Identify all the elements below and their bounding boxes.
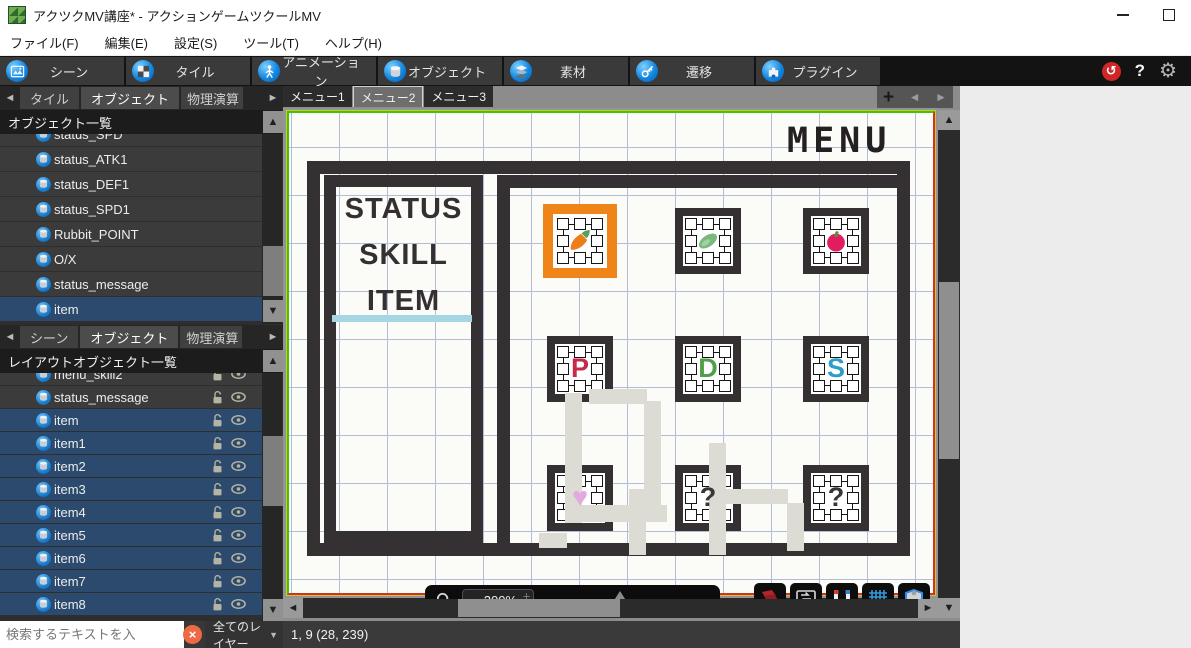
slot-letter-s-glyph: S	[827, 355, 845, 382]
selection-handle[interactable]	[847, 363, 859, 375]
grid-toggle-button[interactable]	[862, 583, 894, 599]
menu-labels: STATUSSKILLITEM	[324, 193, 483, 318]
selection-handle[interactable]	[813, 492, 825, 504]
object-icon	[36, 482, 51, 497]
slot-carrot[interactable]	[543, 204, 617, 278]
magnet-icon	[830, 587, 854, 600]
eye-icon[interactable]	[231, 484, 246, 494]
canvas-tab-1[interactable]: メニュー1	[283, 86, 352, 107]
selection-handle[interactable]	[557, 346, 569, 358]
search-input[interactable]	[0, 621, 184, 648]
list-item-label: status_message	[54, 277, 149, 292]
list-item-label: item2	[54, 459, 86, 474]
eye-icon[interactable]	[231, 530, 246, 540]
vertical-scroll-thumb[interactable]	[939, 282, 959, 459]
list-item-status_message[interactable]: status_message	[0, 272, 262, 296]
menu-item-5[interactable]: ヘルプ(H)	[325, 33, 382, 52]
layout-panel-header: レイアウトオブジェクト一覧	[0, 349, 283, 373]
toolbar-tab-label: 遷移	[658, 62, 754, 81]
list-item-status_message[interactable]: status_message	[0, 386, 262, 408]
vertical-scrollbar[interactable]: ▲ ▼	[938, 110, 960, 618]
chevron-down-icon: ▼	[269, 630, 283, 640]
list-item-menu_skill2[interactable]: menu_skill2	[0, 373, 262, 385]
list-item-label: item8	[54, 597, 86, 612]
list-item-label: status_ATK1	[54, 152, 127, 167]
layout-list-scroll-thumb[interactable]	[263, 436, 283, 506]
grid-icon	[866, 587, 890, 600]
list-item-label: item	[54, 413, 79, 428]
object-icon	[36, 459, 51, 474]
scroll-down-icon[interactable]: ▼	[938, 598, 960, 618]
unlock-icon[interactable]	[212, 529, 223, 542]
map-path	[787, 503, 804, 551]
list-item-label: item5	[54, 528, 86, 543]
toolbar-tab-animation[interactable]: アニメーション	[252, 57, 376, 85]
clear-search-icon[interactable]: ×	[183, 625, 202, 644]
add-tab-icon[interactable]: +	[883, 88, 894, 107]
object-panel-tab-1[interactable]: タイル	[20, 87, 79, 109]
eye-icon[interactable]	[231, 415, 246, 425]
unlock-icon[interactable]	[212, 575, 223, 588]
tab-scroll-left-icon[interactable]: ◄	[909, 90, 921, 104]
list-item-item1[interactable]: item1	[0, 432, 262, 454]
undo-icon[interactable]: ↺	[1102, 62, 1121, 81]
layout-panel-tab-1[interactable]: シーン	[20, 326, 78, 348]
left-panel: ◄タイルオブジェクト物理演算► オブジェクト一覧 ▲ status_SPDsta…	[0, 86, 283, 621]
unlock-icon[interactable]	[212, 598, 223, 611]
list-item-label: status_SPD1	[54, 202, 130, 217]
zoom-value-field[interactable]: 200% ＋−	[462, 589, 534, 599]
scroll-right-icon[interactable]: ►	[918, 598, 938, 618]
slot-apple[interactable]	[803, 208, 869, 274]
toolbar-tab-label: 素材	[532, 62, 628, 81]
list-item-Rubbit_POINT[interactable]: Rubbit_POINT	[0, 222, 262, 246]
unlock-icon[interactable]	[212, 506, 223, 519]
selection-handle[interactable]	[813, 346, 825, 358]
menu-bar: ファイル(F)編集(E)設定(S)ツール(T)ヘルプ(H)	[0, 30, 1191, 56]
canvas-region: メニュー1メニュー2メニュー3 + ◄ ► MENU STATUSSKILLIT…	[283, 86, 960, 621]
horizontal-scrollbar[interactable]: ◄ ►	[283, 598, 938, 618]
layout-panel-tab-3[interactable]: 物理演算	[180, 326, 242, 348]
object-list-scroll-thumb[interactable]	[263, 246, 283, 296]
selection-handle[interactable]	[719, 363, 731, 375]
list-item-item7[interactable]: item7	[0, 570, 262, 592]
toolbar-tab-label: タイル	[154, 62, 250, 81]
toolbar-tab-label: シーン	[28, 62, 124, 81]
toolbar-tab-scene[interactable]: シーン	[0, 57, 124, 85]
canvas-tab-2[interactable]: メニュー2	[353, 86, 424, 107]
object-icon	[36, 227, 51, 242]
toolbar-tab-label: オブジェクト	[406, 62, 502, 81]
status-bar: 1, 9 (28, 239)	[283, 621, 960, 648]
list-item-status_ATK1[interactable]: status_ATK1	[0, 147, 262, 171]
toolbar-tab-label: アニメーション	[280, 52, 376, 90]
list-item-label: Rubbit_POINT	[54, 227, 139, 242]
show-courses-button[interactable]	[754, 583, 786, 599]
slot-question-2[interactable]: ?	[803, 465, 869, 531]
minimize-button[interactable]	[1117, 14, 1129, 16]
scroll-left-icon[interactable]: ◄	[283, 598, 303, 618]
eye-icon[interactable]	[231, 438, 246, 448]
layout-panel-tabs-right-arrow-icon[interactable]: ►	[263, 325, 283, 349]
map-path	[629, 489, 646, 555]
zoom-slider[interactable]	[542, 585, 710, 599]
empty-workspace-area	[960, 86, 1191, 648]
eye-icon[interactable]	[231, 392, 246, 402]
list-item-item5[interactable]: item5	[0, 524, 262, 546]
layer-filter-dropdown[interactable]: 全てのレイヤー ▼	[205, 621, 283, 648]
material-icon	[510, 60, 532, 82]
selection-handle[interactable]	[847, 380, 859, 392]
list-item-label: item1	[54, 436, 86, 451]
apple-icon	[823, 228, 849, 254]
transition-icon	[636, 60, 658, 82]
object-icon	[36, 202, 51, 217]
slot-letter-s[interactable]: S	[803, 336, 869, 402]
object-icon	[36, 277, 51, 292]
screen-arrows-eye-icon	[794, 587, 818, 600]
layout-panel-tabs-left-arrow-icon[interactable]: ◄	[0, 325, 20, 349]
object-list: status_SPDstatus_ATK1status_DEF1status_S…	[0, 134, 262, 324]
layout-panel-tab-2[interactable]: オブジェクト	[80, 326, 178, 348]
eye-icon[interactable]	[231, 373, 246, 379]
unlock-icon[interactable]	[212, 373, 223, 381]
selection-handle[interactable]	[685, 363, 697, 375]
object-icon	[36, 152, 51, 167]
scene-menu-title: MENU	[787, 121, 927, 161]
object-icon	[36, 252, 51, 267]
eye-icon[interactable]	[231, 507, 246, 517]
list-item-O-X[interactable]: O/X	[0, 247, 262, 271]
layout-panel-title: レイアウトオブジェクト一覧	[8, 352, 177, 371]
list-item-item4[interactable]: item4	[0, 501, 262, 523]
menu-item-1[interactable]: ファイル(F)	[10, 33, 79, 52]
object-icon	[36, 551, 51, 566]
selection-handle[interactable]	[591, 492, 603, 504]
selection-handle[interactable]	[591, 475, 603, 487]
toolbar-tab-label: プラグイン	[784, 62, 880, 81]
maximize-button[interactable]	[1163, 9, 1175, 21]
show-transitions-button[interactable]	[790, 583, 822, 599]
list-item-label: item3	[54, 482, 86, 497]
app-icon	[8, 6, 26, 24]
selection-handle[interactable]	[847, 492, 859, 504]
search-strip: × 全てのレイヤー ▼	[0, 621, 283, 648]
collision-shield-button[interactable]	[898, 583, 930, 599]
eye-icon[interactable]	[231, 576, 246, 586]
slot-letter-d-glyph: D	[698, 355, 718, 382]
list-item-item8[interactable]: item8	[0, 593, 262, 615]
list-item-label: status_message	[54, 390, 149, 405]
object-icon	[36, 390, 51, 405]
list-item-label: item	[54, 302, 79, 317]
unlock-icon[interactable]	[212, 414, 223, 427]
list-item-item6[interactable]: item6	[0, 547, 262, 569]
menu-item-3[interactable]: 設定(S)	[174, 33, 217, 52]
map-path	[539, 533, 567, 548]
object-icon	[36, 528, 51, 543]
main-toolbar: シーンタイルアニメーションオブジェクト素材遷移プラグイン ↺ ? ⚙	[0, 56, 1191, 86]
object-list-scroll-down[interactable]: ▼	[263, 300, 283, 322]
selection-handle[interactable]	[591, 363, 603, 375]
slot-heart-glyph: ♥	[572, 484, 588, 511]
layout-object-list: menu_skill2status_messageitemitem1item2i…	[0, 373, 262, 621]
unlock-icon[interactable]	[212, 552, 223, 565]
object-icon	[36, 574, 51, 589]
unlock-icon[interactable]	[212, 391, 223, 404]
unlock-icon[interactable]	[212, 483, 223, 496]
menu-label-skill: SKILL	[359, 239, 448, 272]
list-item-label: item6	[54, 551, 86, 566]
object-icon	[36, 413, 51, 428]
list-item-label: menu_skill2	[54, 373, 123, 382]
selection-handle[interactable]	[813, 475, 825, 487]
slot-letter-d[interactable]: D	[675, 336, 741, 402]
scroll-up-icon[interactable]: ▲	[938, 110, 960, 130]
snap-magnet-button[interactable]	[826, 583, 858, 599]
selection-handle[interactable]	[813, 363, 825, 375]
object-icon	[36, 597, 51, 612]
slot-leaf[interactable]	[675, 208, 741, 274]
selection-handle[interactable]	[591, 346, 603, 358]
object-panel-tab-2[interactable]: オブジェクト	[81, 87, 179, 109]
zoom-toolbar: 200% ＋−	[425, 585, 720, 599]
list-item-item2[interactable]: item2	[0, 455, 262, 477]
eye-icon[interactable]	[231, 461, 246, 471]
canvas-tab-3[interactable]: メニュー3	[424, 86, 493, 107]
object-panel-tabbar: ◄タイルオブジェクト物理演算►	[0, 86, 283, 110]
minimize-icon	[1117, 14, 1129, 16]
slot-question-2-glyph: ?	[828, 484, 845, 511]
help-icon[interactable]: ?	[1135, 61, 1145, 81]
menu-label-item: ITEM	[367, 285, 440, 318]
map-path	[589, 389, 647, 404]
eye-icon[interactable]	[231, 599, 246, 609]
list-item-label: item7	[54, 574, 86, 589]
app-window: アクツクMV講座* - アクションゲームツクールMV ファイル(F)編集(E)設…	[0, 0, 1191, 648]
tile-icon	[132, 60, 154, 82]
selection-handle[interactable]	[685, 492, 697, 504]
selection-handle[interactable]	[847, 509, 859, 521]
map-path	[726, 489, 788, 504]
zoom-value: 200%	[484, 593, 517, 600]
maximize-icon	[1163, 9, 1175, 21]
list-item-status_DEF1[interactable]: status_DEF1	[0, 172, 262, 196]
window-title: アクツクMV講座* - アクションゲームツクールMV	[33, 6, 321, 25]
magnifier-icon	[435, 591, 454, 600]
list-item-status_SPD[interactable]: status_SPD	[0, 134, 262, 146]
unlock-icon[interactable]	[212, 437, 223, 450]
object-panel-tabs-left-arrow-icon[interactable]: ◄	[0, 86, 20, 110]
list-item-item[interactable]: item	[0, 409, 262, 431]
carrot-icon	[567, 228, 593, 254]
horizontal-scroll-thumb[interactable]	[458, 599, 620, 617]
object-icon	[36, 177, 51, 192]
cursor-coordinates: 1, 9 (28, 239)	[291, 627, 368, 642]
layout-panel-tabbar: ◄シーンオブジェクト物理演算►	[0, 325, 283, 349]
settings-gear-icon[interactable]: ⚙	[1159, 61, 1177, 81]
selection-handle[interactable]	[685, 509, 697, 521]
canvas-tool-buttons	[754, 583, 930, 599]
zoom-stepper[interactable]: ＋−	[522, 590, 531, 599]
animation-icon	[258, 60, 280, 82]
selection-handle[interactable]	[719, 380, 731, 392]
object-panel-tab-3[interactable]: 物理演算	[181, 87, 243, 109]
selection-handle[interactable]	[685, 475, 697, 487]
tab-scroll-right-icon[interactable]: ►	[935, 90, 947, 104]
layout-list-scroll-up[interactable]: ▲	[263, 350, 283, 372]
object-panel-tabs-right-arrow-icon[interactable]: ►	[263, 86, 283, 110]
list-item-label: status_SPD	[54, 134, 123, 142]
unlock-icon[interactable]	[212, 460, 223, 473]
object-list-scroll-up[interactable]: ▲	[263, 111, 283, 133]
canvas-viewport[interactable]: MENU STATUSSKILLITEM PDS♥?? 200% ＋−	[283, 108, 938, 599]
object-icon	[384, 60, 406, 82]
object-icon	[36, 373, 51, 382]
object-icon	[36, 134, 51, 142]
canvas-tabbar: メニュー1メニュー2メニュー3	[283, 86, 960, 108]
list-item-item[interactable]: item	[0, 297, 262, 321]
item-underline	[332, 315, 472, 322]
selection-handle[interactable]	[685, 380, 697, 392]
list-item-label: item4	[54, 505, 86, 520]
list-item-item3[interactable]: item3	[0, 478, 262, 500]
list-item-label: status_DEF1	[54, 177, 129, 192]
scene-canvas[interactable]: MENU STATUSSKILLITEM PDS♥??	[287, 111, 935, 595]
slot-question-1-glyph: ?	[700, 484, 717, 511]
title-bar: アクツクMV講座* - アクションゲームツクールMV	[0, 0, 1191, 30]
toolbar-tab-tile[interactable]: タイル	[126, 57, 250, 85]
selection-handle[interactable]	[847, 346, 859, 358]
list-item-status_SPD1[interactable]: status_SPD1	[0, 197, 262, 221]
menu-item-4[interactable]: ツール(T)	[243, 33, 299, 52]
selection-handle[interactable]	[813, 509, 825, 521]
toolbar-tab-material[interactable]: 素材	[504, 57, 628, 85]
canvas-tab-controls: + ◄ ►	[877, 86, 953, 108]
selection-handle[interactable]	[813, 380, 825, 392]
map-path	[644, 401, 661, 522]
toolbar-tab-transition[interactable]: 遷移	[630, 57, 754, 85]
scene-icon	[6, 60, 28, 82]
object-icon	[36, 505, 51, 520]
selection-handle[interactable]	[847, 475, 859, 487]
list-item-label: O/X	[54, 252, 76, 267]
object-icon	[36, 436, 51, 451]
toolbar-tab-plugin[interactable]: プラグイン	[756, 57, 880, 85]
selection-handle[interactable]	[557, 363, 569, 375]
plugin-icon	[762, 60, 784, 82]
menu-label-status: STATUS	[345, 193, 463, 226]
selection-handle[interactable]	[719, 346, 731, 358]
toolbar-tab-object[interactable]: オブジェクト	[378, 57, 502, 85]
zoom-slider-thumb[interactable]	[613, 591, 627, 599]
layer-filter-value: 全てのレイヤー	[213, 618, 269, 648]
shield-icon	[902, 587, 926, 600]
menu-item-2[interactable]: 編集(E)	[105, 33, 148, 52]
object-panel-header: オブジェクト一覧	[0, 110, 283, 134]
object-icon	[36, 302, 51, 317]
selection-handle[interactable]	[685, 346, 697, 358]
leaf-icon	[695, 228, 721, 254]
eye-icon[interactable]	[231, 553, 246, 563]
selection-handle[interactable]	[557, 380, 569, 392]
slot-letter-p-glyph: P	[571, 355, 589, 382]
red-layers-eye-icon	[758, 587, 782, 600]
object-panel-title: オブジェクト一覧	[8, 113, 112, 132]
